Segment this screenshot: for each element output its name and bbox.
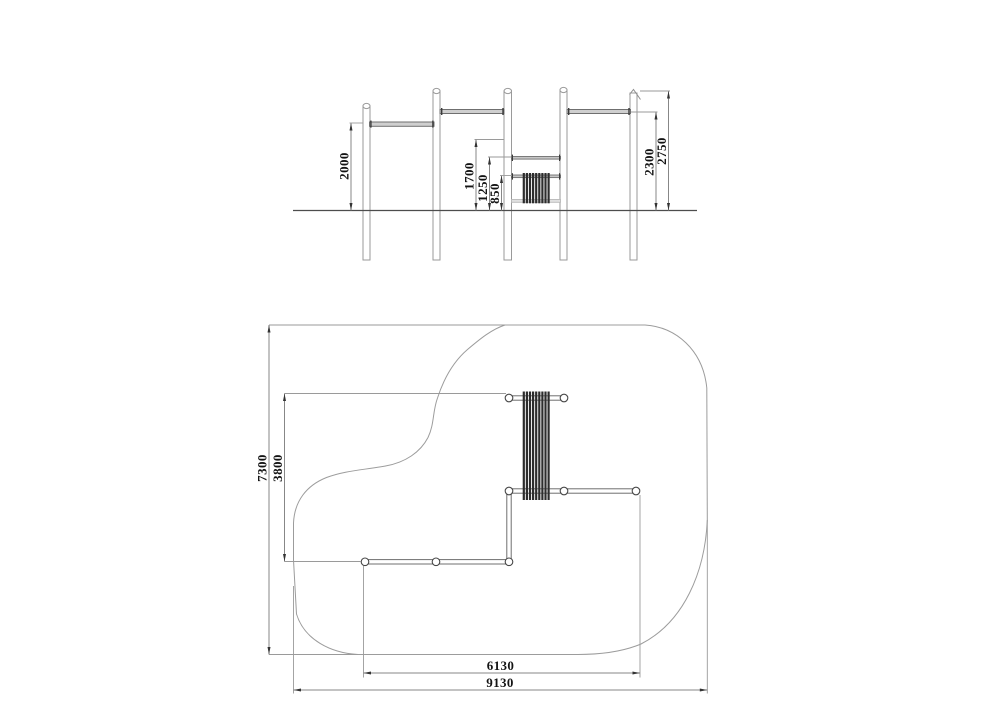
bar-end-tick <box>370 121 371 128</box>
technical-drawing: 2000 1700 1250 850 2300 2750 <box>0 0 1000 724</box>
post-node <box>632 487 640 495</box>
post-5 <box>630 93 637 260</box>
post-3-cap <box>504 88 511 93</box>
dim-1700-arrow-bottom <box>475 203 478 211</box>
dim-6130-label: 6130 <box>487 658 515 673</box>
post-1 <box>363 106 370 260</box>
bar-end-tick <box>628 108 629 115</box>
dim-1700-arrow-top <box>475 140 478 148</box>
rail-end-tick <box>512 173 513 179</box>
ladder-rung <box>541 392 543 501</box>
post-2-cap <box>433 88 440 93</box>
ladder-rung <box>535 173 537 203</box>
dim-850-arrow-top <box>500 176 503 184</box>
ladder-rung <box>535 392 537 501</box>
ladder-rung <box>532 173 534 203</box>
dim-2750-arrow-top <box>667 91 670 99</box>
post-4-cap <box>560 87 567 92</box>
dim-6130-arrow-left <box>364 672 372 675</box>
dim-7300-arrow-top <box>268 325 271 333</box>
pullup-bar-low <box>370 122 435 126</box>
plan-bar-vertical <box>507 491 511 562</box>
rail-end-tick <box>559 173 560 179</box>
ladder-rung <box>548 173 550 203</box>
post-1-cap <box>363 103 370 108</box>
dim-3800-arrow-top <box>283 394 286 402</box>
bar-end-tick <box>502 108 503 115</box>
safety-zone-outline <box>294 325 708 655</box>
post-node <box>505 558 513 566</box>
vertical-rungs-plan <box>523 392 550 501</box>
dim-2750-arrow-bottom <box>667 203 670 211</box>
ladder-rung <box>541 173 543 203</box>
ladder-rung <box>523 173 525 203</box>
dim-3800-arrow-bottom <box>283 554 286 562</box>
drawing-canvas: 2000 1700 1250 850 2300 2750 <box>0 0 1000 724</box>
rail-end-tick <box>559 155 560 161</box>
bar-end-tick <box>441 108 442 115</box>
post-node <box>361 558 369 566</box>
bar-end-tick <box>568 108 569 115</box>
rail-end-tick <box>512 155 513 161</box>
post-2 <box>433 91 440 260</box>
dim-7300-arrow-bottom <box>268 647 271 655</box>
post-node <box>505 394 513 402</box>
ladder-rung <box>548 392 550 501</box>
dim-9130-arrow-left <box>294 689 302 692</box>
dim-2300-arrow-top <box>655 112 658 120</box>
pullup-bar-high-right <box>567 110 631 114</box>
dim-2750-label: 2750 <box>654 137 669 165</box>
ladder-rung <box>526 173 528 203</box>
bar-end-tick <box>432 121 433 128</box>
pullup-bar-high-left <box>440 110 504 114</box>
dim-2300-arrow-bottom <box>655 203 658 211</box>
dim-2000-arrow-top <box>350 123 353 131</box>
ladder-rail-1250 <box>512 157 561 160</box>
ladder-rung <box>538 392 540 501</box>
dim-2000-label: 2000 <box>337 152 352 180</box>
dim-9130-arrow-right <box>700 689 708 692</box>
post-4 <box>560 90 567 260</box>
dim-9130-label: 9130 <box>486 675 514 690</box>
post-node <box>505 487 513 495</box>
post-node <box>560 394 568 402</box>
dim-7300-label: 7300 <box>255 454 270 482</box>
ladder-rung <box>526 392 528 501</box>
post-node <box>432 558 440 566</box>
ladder-rung <box>538 173 540 203</box>
dim-850-label: 850 <box>487 183 502 204</box>
ladder-rung <box>529 173 531 203</box>
dim-1250-arrow-top <box>488 157 491 165</box>
elevation-view: 2000 1700 1250 850 2300 2750 <box>293 87 697 260</box>
vertical-rungs-elevation <box>523 173 550 203</box>
ladder-rung <box>529 392 531 501</box>
post-node <box>560 487 568 495</box>
ladder-rung <box>544 173 546 203</box>
dim-2000-arrow-bottom <box>350 203 353 211</box>
dim-3800-label: 3800 <box>270 454 285 482</box>
plan-view: 7300 3800 6130 9130 <box>255 325 708 694</box>
ladder-rung <box>544 392 546 501</box>
ladder-rung <box>523 392 525 501</box>
dim-6130-arrow-right <box>633 672 641 675</box>
ladder-rung <box>532 392 534 501</box>
